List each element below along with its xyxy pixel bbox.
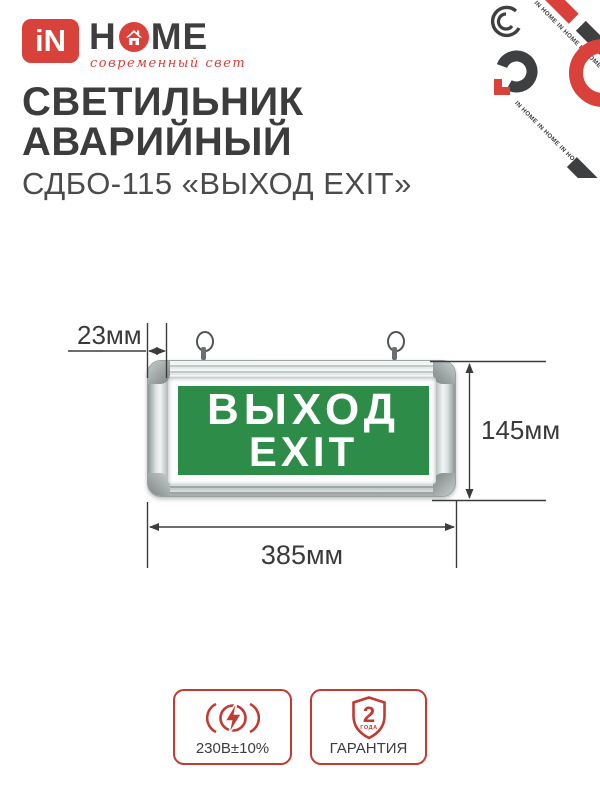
warranty-shield-icon: 2 ГОДА bbox=[349, 694, 389, 742]
pattern-text-strip-2: IN HOME IN HOME IN HOME bbox=[513, 100, 583, 170]
brand-corner-pattern: IN HOME IN HOME IN HOME IN HOME IN HOME … bbox=[430, 0, 600, 178]
brand-logo-mark: iN bbox=[22, 19, 79, 63]
product-card: iN H ME современный свет IN HOME IN HOME… bbox=[0, 0, 600, 800]
brand-word-me: ME bbox=[151, 16, 209, 58]
warranty-badge-label: ГАРАНТИЯ bbox=[330, 740, 408, 757]
diagonal-band-bottom: IN HOME IN HOME IN HOME bbox=[509, 99, 600, 178]
brand-logo-mark-text: iN bbox=[35, 23, 66, 59]
dim-height-label: 145мм bbox=[481, 415, 560, 446]
warranty-shield-word: ГОДА bbox=[360, 725, 377, 731]
dim-width-label: 385мм bbox=[240, 540, 364, 571]
diagonal-band-top: IN HOME IN HOME IN HOME bbox=[533, 0, 600, 70]
warranty-badge: 2 ГОДА ГАРАНТИЯ bbox=[310, 689, 427, 765]
brand-tagline: современный свет bbox=[90, 56, 246, 71]
page-title-line2: АВАРИЙНЫЙ bbox=[22, 122, 292, 162]
dim-depth-label: 23мм bbox=[77, 320, 142, 351]
page-title-line1: СВЕТИЛЬНИК bbox=[22, 82, 304, 122]
product-model-subtitle: СДБО-115 «ВЫХОД EXIT» bbox=[22, 166, 412, 202]
voltage-badge-label: 230В±10% bbox=[196, 740, 269, 757]
voltage-badge: 230В±10% bbox=[173, 689, 292, 765]
voltage-lightning-icon bbox=[206, 694, 260, 742]
brand-logo-wordmark: H ME bbox=[89, 20, 208, 54]
warranty-shield-number: 2 bbox=[362, 702, 374, 727]
brand-word-h: H bbox=[89, 16, 117, 58]
house-icon bbox=[125, 29, 143, 46]
home-icon bbox=[119, 22, 149, 52]
